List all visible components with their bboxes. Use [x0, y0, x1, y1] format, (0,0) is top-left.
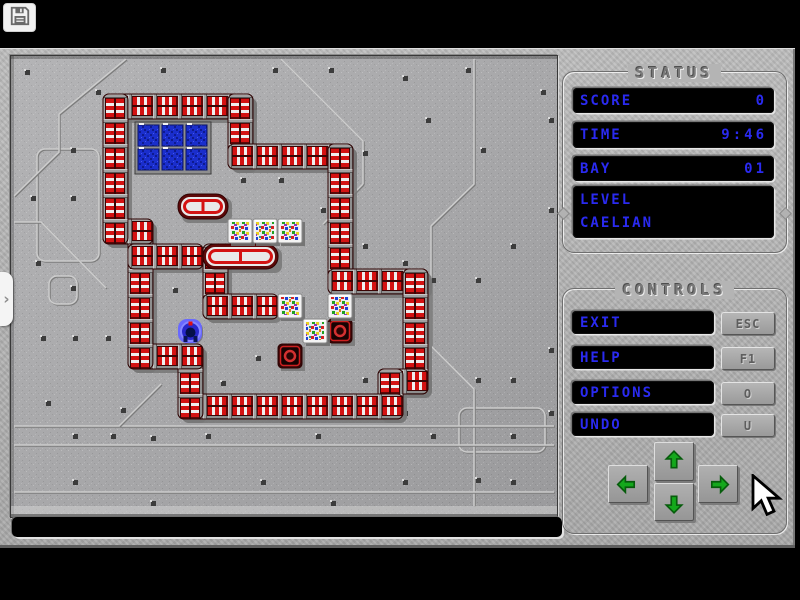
player[interactable]	[178, 319, 203, 344]
help-key-button[interactable]: F1	[721, 347, 775, 370]
arrow-right-icon	[706, 473, 731, 495]
controls-panel: CONTROLS EXIT ESC HELP F1 OPTIONS O UNDO…	[562, 288, 787, 534]
message-bar	[12, 517, 562, 537]
floppy-disk-icon	[9, 5, 31, 30]
bay-label: BAY	[580, 161, 611, 177]
bay-value: 01	[744, 161, 767, 177]
chevron-right-icon: ›	[3, 290, 9, 308]
arrow-left-button[interactable]	[608, 465, 648, 503]
time-value: 9:46	[721, 127, 767, 143]
arrow-up-icon	[663, 449, 685, 474]
arrow-right-button[interactable]	[698, 465, 738, 503]
bay-display: BAY 01	[573, 156, 774, 181]
controls-panel-title: CONTROLS	[563, 280, 786, 299]
exit-button[interactable]: EXIT	[572, 311, 714, 334]
score-value: 0	[756, 93, 767, 109]
arrow-down-button[interactable]	[654, 483, 694, 521]
time-display: TIME 9:46	[573, 122, 774, 148]
exit-key-button[interactable]: ESC	[721, 312, 775, 335]
time-label: TIME	[580, 127, 622, 143]
help-button[interactable]: HELP	[572, 346, 714, 369]
undo-button[interactable]: UNDO	[572, 413, 714, 436]
arrow-down-icon	[663, 490, 685, 515]
game-board[interactable]	[10, 55, 558, 518]
game-window: STATUS SCORE 0 TIME 9:46 BAY 01 LEVEL CA…	[0, 48, 795, 548]
arrow-up-button[interactable]	[654, 442, 694, 481]
panel-notch	[557, 207, 570, 220]
game-screen: STATUS SCORE 0 TIME 9:46 BAY 01 LEVEL CA…	[0, 0, 800, 600]
panel-notch	[779, 207, 792, 220]
options-button[interactable]: OPTIONS	[572, 381, 714, 404]
status-panel: STATUS SCORE 0 TIME 9:46 BAY 01 LEVEL CA…	[562, 71, 787, 253]
arrow-left-icon	[616, 473, 641, 495]
save-button[interactable]	[3, 3, 36, 32]
level-label: LEVEL	[580, 189, 767, 212]
score-display: SCORE 0	[573, 88, 774, 113]
options-key-button[interactable]: O	[721, 382, 775, 405]
score-label: SCORE	[580, 93, 632, 109]
status-panel-title: STATUS	[563, 63, 786, 82]
undo-key-button[interactable]: U	[721, 414, 775, 437]
level-display: LEVEL CAELIAN	[573, 186, 774, 238]
drawer-tab[interactable]: ›	[0, 272, 13, 326]
level-value: CAELIAN	[580, 212, 767, 235]
